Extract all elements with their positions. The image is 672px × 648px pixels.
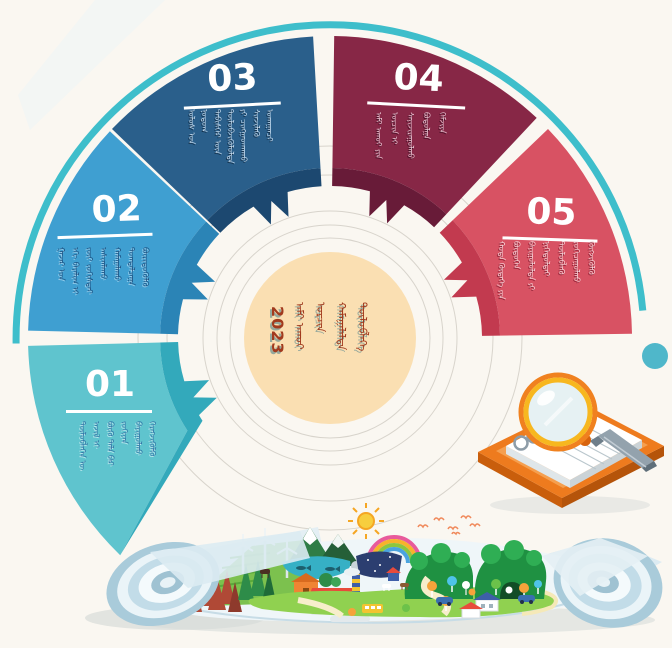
segment-text-column: ᠤᠯᠤᠰ ᠤᠨ: [187, 109, 196, 145]
segment-number-underline: [66, 410, 152, 413]
segment-text-column: ᠭᠠᠵᠠᠷ ᠤᠨ: [57, 247, 66, 281]
magnifier-icon: [521, 375, 595, 449]
center-year: 2023: [268, 306, 287, 355]
segment-text-column: ᠨᠢᠭᠡᠳᠦᠯᠲᠡᠢ: [542, 241, 551, 276]
segment-text-column: ᠰᠢᠨᠵᠢᠯᠡᠬᠦ: [252, 109, 261, 137]
segment-text-column: ᠲᠥᠯᠥᠪᠯᠡᠬᠦ: [557, 241, 567, 275]
segment-text-column: ᠪᠠᠶᠢᠭᠤᠯᠬᠤ: [134, 421, 143, 455]
center-text-column: ᠬᠠᠮᠠᠭᠠᠯᠠᠯᠲᠠ: [335, 302, 348, 351]
segment-text-column: ᠵᠣᠬᠢᠶᠠᠨ: [120, 421, 129, 444]
segment-text-column: ᠬᠡᠷᠡᠭᠵᠢᠭᠦᠯᠬᠦ: [148, 421, 157, 457]
segment-text-column: ᠬᠠᠮᠠᠭᠠᠯᠠᠬᠤ: [113, 247, 122, 281]
segment-number: 04: [393, 57, 445, 101]
segment-text-column: ᠳᠡᠪᠢᠰᠬᠡᠷ ᠦᠨ: [213, 109, 222, 155]
segment-text-column: ᠪᠠᠶᠢᠭᠤᠯᠤᠯᠲᠠ ᠶᠢ: [527, 241, 536, 290]
segment-text-column: ᠨᠤᠲᠤᠭ: [200, 109, 209, 132]
segment-text-column: ᠠᠰᠢᠭᠯᠠᠬᠤ: [99, 247, 108, 280]
segment-text-column: ᠣᠷᠴᠢᠨ ᠢ: [390, 112, 399, 144]
center-text-column: ᠲᠥᠯᠥᠪᠯᠡᠭᠡ: [356, 302, 370, 351]
segment-text-column: ᠵᠣᠬᠢᠴᠠᠭᠤᠯᠬᠤ: [572, 241, 581, 283]
segment-text-column: ᠪᠦᠷᠢᠳᠦᠭᠦᠯᠬᠦ: [141, 247, 150, 287]
segment-text-column: ᠲᠥᠯᠥᠪᠵᠢᠭᠦᠯᠦᠯᠲᠡ: [226, 109, 235, 164]
segment-number: 03: [206, 57, 258, 101]
infographic-poster: 01ᠲᠥᠯᠥᠪᠯᠡᠭᠡᠨ ᠦᠠᠵᠢᠯ ᠢᠪᠦᠬᠦ ᠲᠠᠯᠠ ᠪᠠᠷᠵᠣᠬᠢᠶᠠᠨ…: [0, 0, 672, 648]
center-medallion: 2023 ᠠᠮᠢ ᠠᠬᠤᠢᠣᠷᠴᠢᠨᠬᠠᠮᠠᠭᠠᠯᠠᠯᠲᠠᠲᠥᠯᠥᠪᠯᠡᠭᠡ: [244, 252, 416, 424]
segment-text-column: ᠬᠣᠲᠠ ᠬᠥᠳᠡᠭᠡ ᠶᠢᠨ: [497, 241, 506, 300]
segment-text-column: ᠪᠦᠲᠦᠭᠡᠨ: [512, 241, 521, 270]
segment-text-column: ᠡᠬᠢ ᠪᠠᠶᠠᠯᠢᠭ ᠢ: [71, 247, 80, 295]
segment-text-column: ᠲᠥᠯᠥᠪᠯᠡᠭᠡᠨ ᠦ: [78, 421, 88, 470]
segment-text-column: ᠬᠥᠭᠵᠢᠭᠦᠯᠬᠦ: [587, 241, 596, 275]
segment-text-column: ᠶᠢ ᠴᠢᠩᠭᠠᠳᠬᠠᠬᠤ: [239, 109, 248, 162]
arc-end-dot: [642, 343, 668, 369]
center-text-column: ᠣᠷᠴᠢᠨ: [314, 302, 327, 332]
segment-text-column: ᠪᠦᠬᠦ ᠲᠠᠯᠠ ᠪᠠᠷ: [106, 421, 115, 466]
segment-text-column: ᠲᠣᠭᠲᠠᠯᠴᠠᠭᠠ: [127, 247, 136, 286]
segment-text-column: ᠬᠡᠮᠵᠢᠶᠡ: [438, 112, 447, 134]
segment-text-column: ᠰᠠᠶᠢᠵᠢᠷᠠᠭᠤᠯᠬᠤ: [406, 112, 415, 159]
center-text-column: ᠠᠮᠢ ᠠᠬᠤᠢ: [293, 302, 306, 350]
segment-number: 05: [526, 191, 578, 234]
segment-text-column: ᠤᠬᠠᠭᠠᠨᠴᠢ: [265, 109, 274, 142]
segment-text-column: ᠵᠦᠢ ᠵᠣᠬᠢᠰᠲᠠᠢ: [85, 247, 94, 294]
segment-text-column: ᠪᠣᠳᠣᠯᠭᠠ: [422, 112, 431, 140]
segment-text-column: ᠠᠵᠢᠯ ᠢ: [92, 421, 101, 448]
segment-number: 01: [85, 364, 135, 405]
segment-text-column: ᠠᠮᠢ ᠠᠬᠤᠢ ᠶᠢᠨ: [374, 112, 383, 159]
segment-number: 02: [91, 188, 143, 231]
